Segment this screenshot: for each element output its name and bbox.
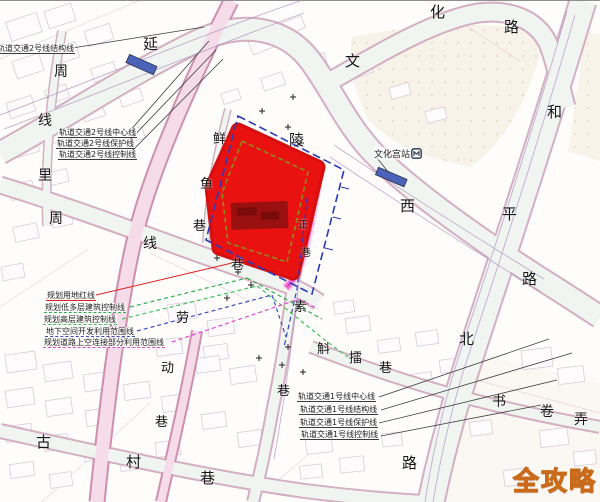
street-label: 线: [143, 237, 157, 251]
street-label: 劳: [176, 312, 189, 325]
street-label: 书: [492, 395, 506, 409]
annotation-label: 轨道交通2号线保护线: [56, 139, 135, 149]
street-label: 路: [402, 456, 417, 471]
annotation-label: 轨道交通1号线控制线: [300, 430, 379, 440]
street-label: 古: [36, 435, 51, 450]
street-label: 巷: [379, 362, 392, 375]
annotation-label: 规划用地红线: [46, 291, 96, 301]
street-label: 西: [400, 199, 415, 214]
street-label: 斛: [317, 343, 330, 356]
street-label: 素: [294, 301, 307, 314]
street-label: 周: [54, 65, 68, 79]
street-label: 陵: [289, 133, 304, 148]
street-label: 正: [298, 221, 308, 231]
annotation-label: 轨道交通2号线控制线: [58, 150, 137, 160]
site-core-block: [231, 201, 289, 230]
annotation-label: 规划道路上空连接部分利用范围线: [43, 338, 165, 348]
station-label: 文化宫站: [374, 147, 422, 160]
street-label: 巷: [231, 259, 244, 272]
street-label: 路: [522, 272, 537, 287]
annotation-label: 规划低多层建筑控制线: [44, 303, 126, 313]
street-label: 巷: [155, 416, 168, 429]
street-label: 卷: [540, 405, 554, 419]
street-label: 擂: [349, 352, 362, 365]
annotation-label: 轨道交通1号线结构线: [299, 405, 378, 415]
street-label: 鲜: [213, 133, 226, 146]
street-label: 路: [504, 20, 519, 35]
street-label: 北: [459, 332, 474, 347]
annotation-label: 地下空间开发利用范围线: [45, 327, 135, 337]
street-label: 平: [502, 207, 517, 222]
street-label: 巷: [301, 249, 311, 259]
annotation-label: 轨道交通2号线结构线: [0, 44, 75, 54]
street-label: 巷: [193, 220, 206, 233]
watermark: 全攻略: [513, 461, 597, 498]
street-label: 巷: [277, 385, 290, 398]
street-label: 文: [345, 54, 360, 69]
street-label: 化: [430, 5, 445, 20]
street-label: 延: [143, 37, 158, 52]
metro-logo-icon: [411, 148, 422, 159]
street-label: 里: [38, 169, 52, 183]
annotation-label: 轨道交通1号线中心线: [297, 392, 376, 402]
street-label: 动: [161, 362, 174, 375]
street-label: 鱼: [200, 178, 213, 191]
annotation-label: 轨道交通1号线保护线: [299, 418, 378, 428]
street-label: 村: [126, 455, 141, 470]
street-label: 线: [38, 114, 52, 128]
street-label: 和: [547, 105, 562, 120]
street-label: 弄: [574, 413, 588, 427]
map-canvas[interactable]: 文化宫站 延陵西路文化路和平北路周线里周线鲜鱼巷巷正巷素斛擂巷巷劳动巷古村巷书卷…: [0, 0, 600, 502]
station-name: 文化宫站: [374, 147, 410, 160]
street-label: 周: [49, 212, 63, 226]
street-label: 巷: [200, 471, 215, 486]
annotation-label: 规划高层建筑控制线: [43, 315, 117, 325]
annotation-label: 轨道交通2号线中心线: [58, 128, 137, 138]
